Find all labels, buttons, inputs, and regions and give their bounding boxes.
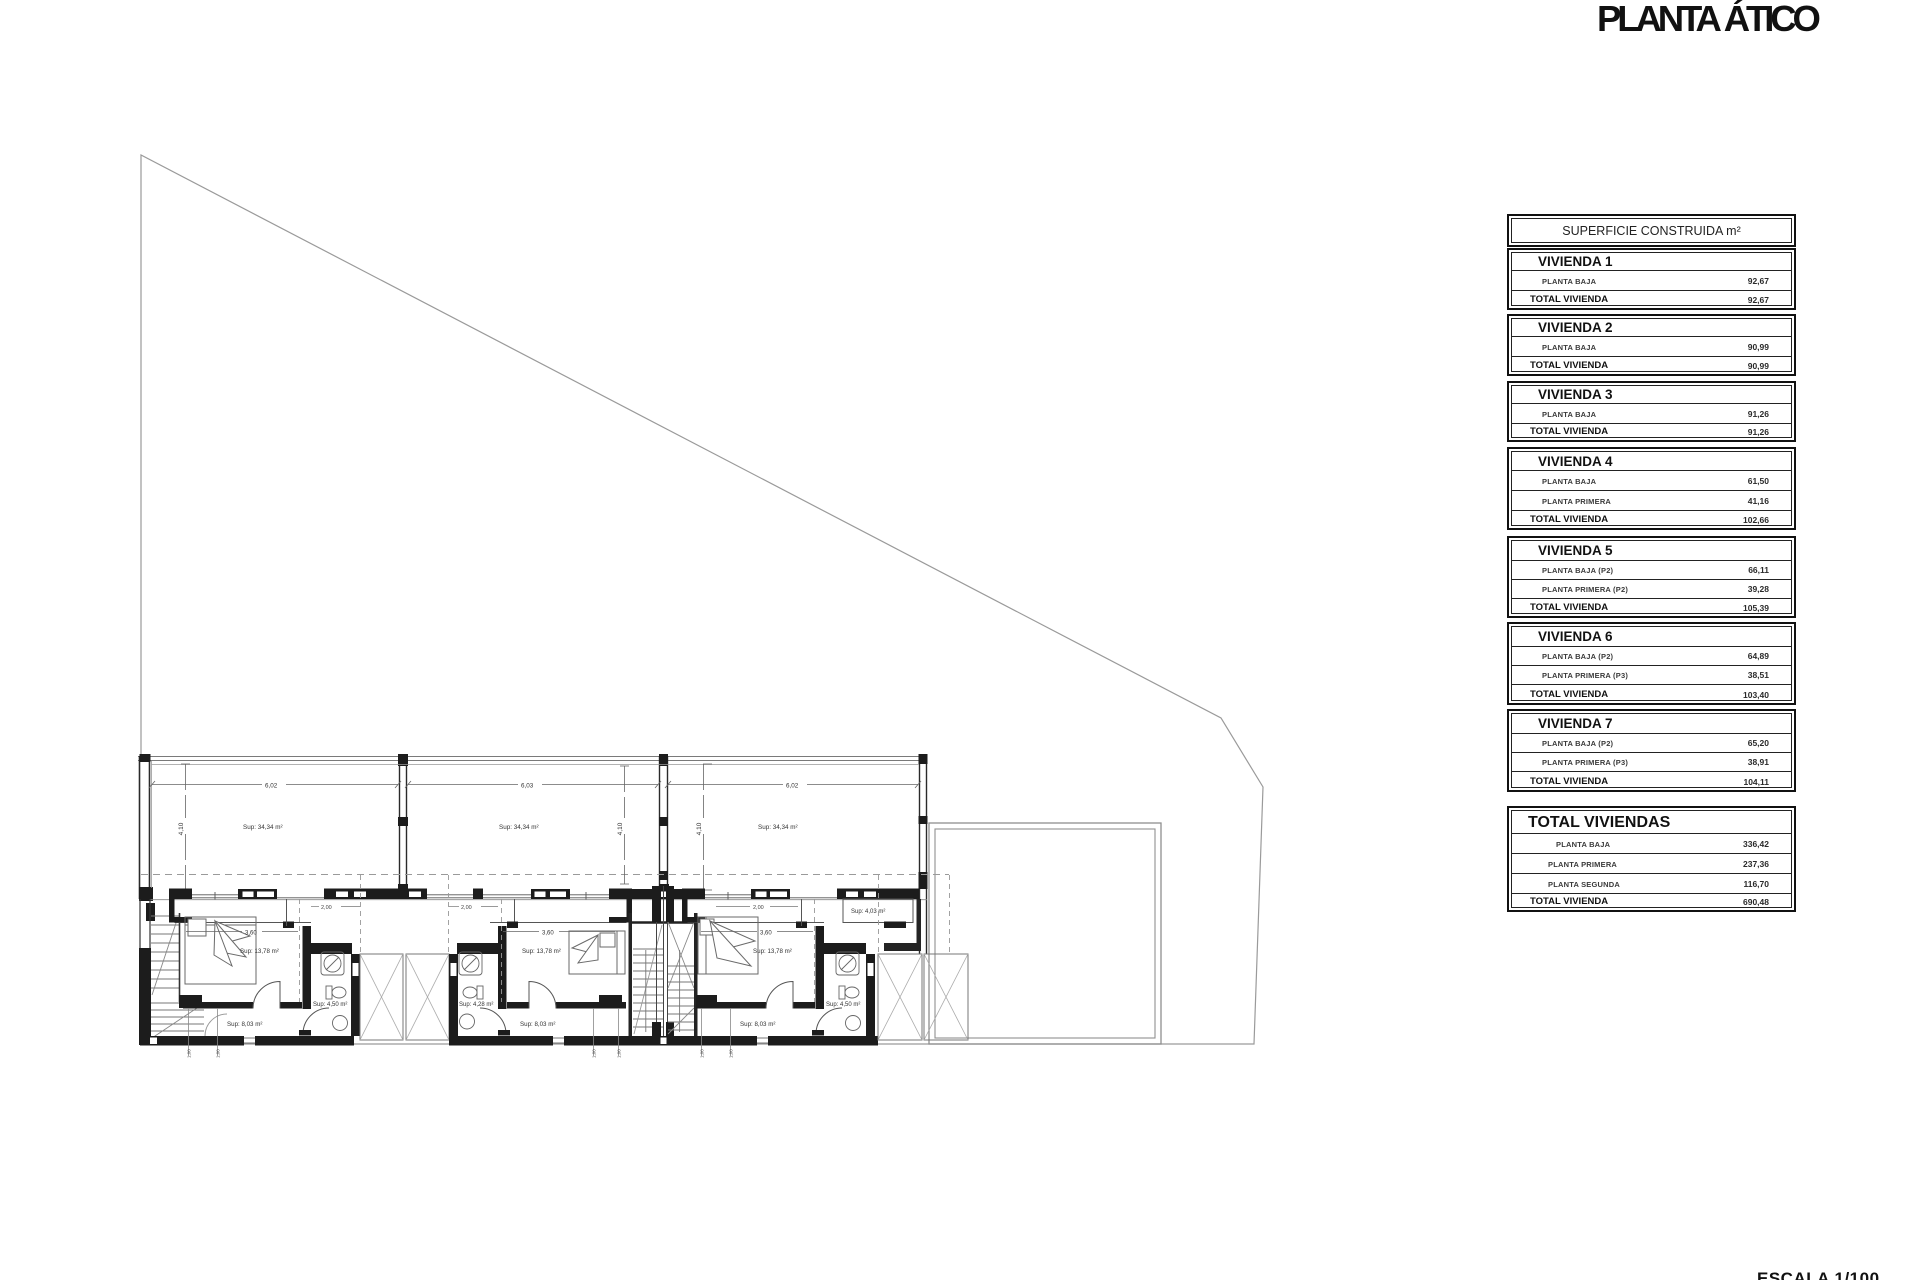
svg-text:Sup: 4,50 m²: Sup: 4,50 m²	[826, 1002, 860, 1008]
svg-text:2,00: 2,00	[321, 905, 332, 911]
svg-text:1,00: 1,00	[592, 1049, 597, 1058]
svg-text:6,02: 6,02	[265, 783, 278, 790]
svg-text:4,10: 4,10	[178, 822, 185, 835]
svg-text:1,00: 1,00	[617, 1049, 622, 1058]
svg-text:6,02: 6,02	[786, 783, 799, 790]
svg-text:Sup: 34,34 m²: Sup: 34,34 m²	[499, 824, 539, 831]
svg-text:6,03: 6,03	[521, 783, 534, 790]
svg-text:Sup: 13,78 m²: Sup: 13,78 m²	[753, 948, 792, 955]
svg-text:1,00: 1,00	[700, 1049, 705, 1058]
svg-text:Sup: 4,50 m²: Sup: 4,50 m²	[313, 1002, 347, 1008]
svg-text:Sup: 8,03 m²: Sup: 8,03 m²	[520, 1021, 555, 1028]
svg-text:2,00: 2,00	[461, 905, 472, 911]
svg-text:Sup: 8,03 m²: Sup: 8,03 m²	[227, 1021, 262, 1028]
svg-text:1,00: 1,00	[216, 1049, 221, 1058]
svg-text:3,60: 3,60	[542, 931, 554, 937]
svg-text:4,10: 4,10	[617, 822, 624, 835]
svg-text:3,60: 3,60	[760, 931, 772, 937]
svg-text:Sup: 8,03 m²: Sup: 8,03 m²	[740, 1021, 775, 1028]
svg-text:Sup: 13,78 m²: Sup: 13,78 m²	[240, 948, 279, 955]
svg-text:Sup: 4,03 m²: Sup: 4,03 m²	[851, 909, 885, 915]
svg-text:Sup: 4,28 m²: Sup: 4,28 m²	[459, 1002, 493, 1008]
svg-text:2,00: 2,00	[753, 905, 764, 911]
svg-text:1,00: 1,00	[729, 1049, 734, 1058]
svg-text:Sup: 13,78 m²: Sup: 13,78 m²	[522, 948, 561, 955]
svg-text:Sup: 34,34 m²: Sup: 34,34 m²	[758, 824, 798, 831]
svg-text:1,00: 1,00	[187, 1049, 192, 1058]
svg-text:Sup: 34,34 m²: Sup: 34,34 m²	[243, 824, 283, 831]
svg-text:4,10: 4,10	[696, 822, 703, 835]
svg-text:3,60: 3,60	[245, 931, 257, 937]
